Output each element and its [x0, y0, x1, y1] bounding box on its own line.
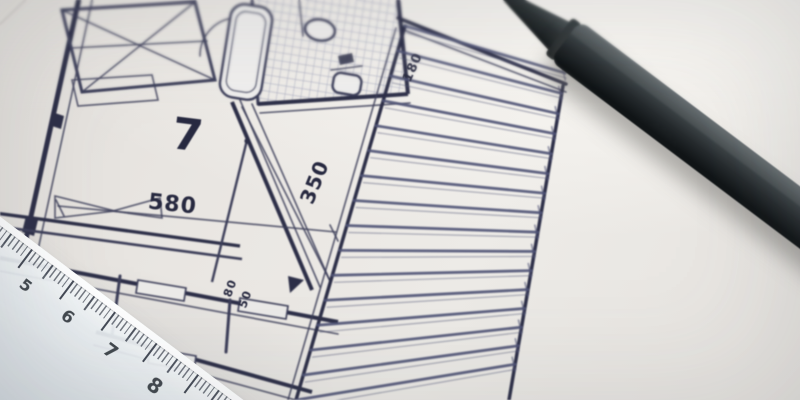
dimension-50-label: 50: [235, 288, 254, 310]
dimension-180-label: 180: [400, 51, 426, 85]
dimension-580-label: 580: [147, 190, 198, 220]
room-number-label: 7: [169, 108, 206, 162]
photo-of-floorplan-desk: 7 580 350 180 80 50 4 5 6 7 8: [0, 0, 800, 400]
dimension-350-label: 350: [295, 157, 334, 207]
dimension-80-label: 80: [220, 277, 239, 299]
